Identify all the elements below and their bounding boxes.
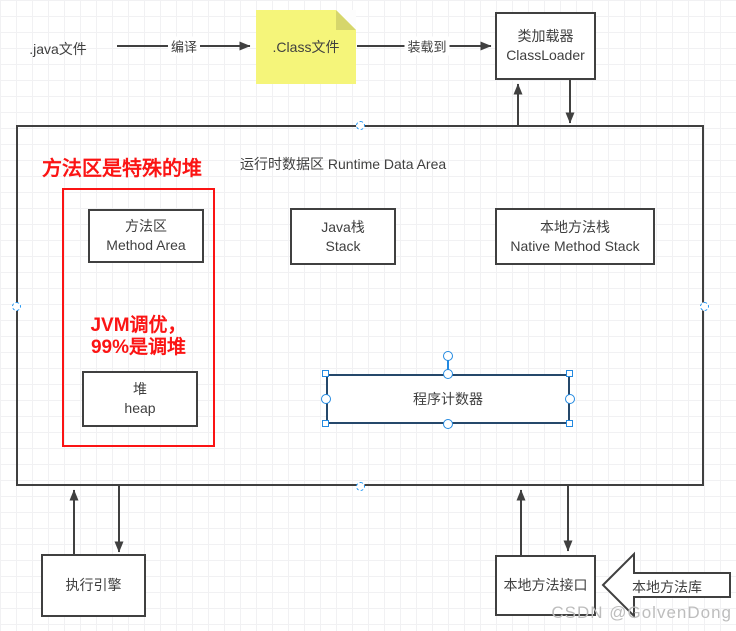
native-method-stack-box[interactable]: 本地方法栈 Native Method Stack: [495, 208, 655, 265]
java-stack-label-en: Stack: [325, 237, 360, 256]
class-file-note-label: .Class文件: [273, 37, 340, 57]
resize-handle-nw[interactable]: [322, 370, 329, 377]
method-area-label-en: Method Area: [106, 236, 185, 255]
csdn-watermark: CSDN @GolvenDong: [551, 603, 732, 623]
java-stack-box[interactable]: Java栈 Stack: [290, 208, 396, 265]
heap-box[interactable]: 堆 heap: [82, 371, 198, 427]
java-file-label[interactable]: .java文件: [18, 39, 98, 59]
method-area-label-zh: 方法区: [125, 217, 167, 236]
native-method-stack-label-en: Native Method Stack: [510, 237, 639, 256]
compile-edge-label[interactable]: 编译: [168, 37, 200, 56]
native-method-interface-label: 本地方法接口: [504, 576, 588, 595]
connection-point-left[interactable]: [12, 302, 21, 311]
method-area-annotation-heading[interactable]: 方法区是特殊的堆: [36, 152, 208, 181]
method-area-box[interactable]: 方法区 Method Area: [88, 209, 204, 263]
heap-label-zh: 堆: [133, 380, 147, 399]
edge-handle-n[interactable]: [443, 369, 453, 379]
classloader-label-en: ClassLoader: [506, 46, 585, 65]
native-method-stack-label-zh: 本地方法栈: [540, 218, 610, 237]
classloader-label-zh: 类加载器: [518, 27, 574, 46]
jvm-tuning-line1: JVM调优，: [90, 315, 186, 336]
connection-point-top[interactable]: [356, 121, 365, 130]
program-counter-box[interactable]: 程序计数器: [326, 374, 570, 424]
native-method-library-label: 本地方法库: [614, 577, 720, 597]
edge-handle-s[interactable]: [443, 419, 453, 429]
edge-handle-w[interactable]: [321, 394, 331, 404]
edge-handle-e[interactable]: [565, 394, 575, 404]
load-edge-label[interactable]: 装载到: [404, 37, 449, 56]
runtime-data-area-title: 运行时数据区 Runtime Data Area: [240, 154, 444, 174]
execution-engine-label: 执行引擎: [66, 576, 122, 595]
execution-engine-box[interactable]: 执行引擎: [41, 554, 146, 617]
jvm-tuning-line2: 99%是调堆: [91, 337, 186, 358]
classloader-box[interactable]: 类加载器 ClassLoader: [495, 12, 596, 80]
resize-handle-ne[interactable]: [566, 370, 573, 377]
resize-handle-se[interactable]: [566, 420, 573, 427]
class-file-note[interactable]: .Class文件: [256, 10, 356, 84]
note-fold-icon: [336, 10, 356, 30]
diagram-canvas: .java文件 编译 .Class文件 装载到 类加载器 ClassLoader…: [0, 0, 736, 631]
connection-point-bottom[interactable]: [356, 482, 365, 491]
jvm-tuning-annotation[interactable]: JVM调优， 99%是调堆: [64, 315, 213, 359]
rotation-handle[interactable]: [443, 351, 453, 361]
heap-label-en: heap: [124, 399, 155, 418]
connection-point-right[interactable]: [700, 302, 709, 311]
resize-handle-sw[interactable]: [322, 420, 329, 427]
java-stack-label-zh: Java栈: [321, 218, 365, 237]
program-counter-label: 程序计数器: [413, 389, 483, 409]
